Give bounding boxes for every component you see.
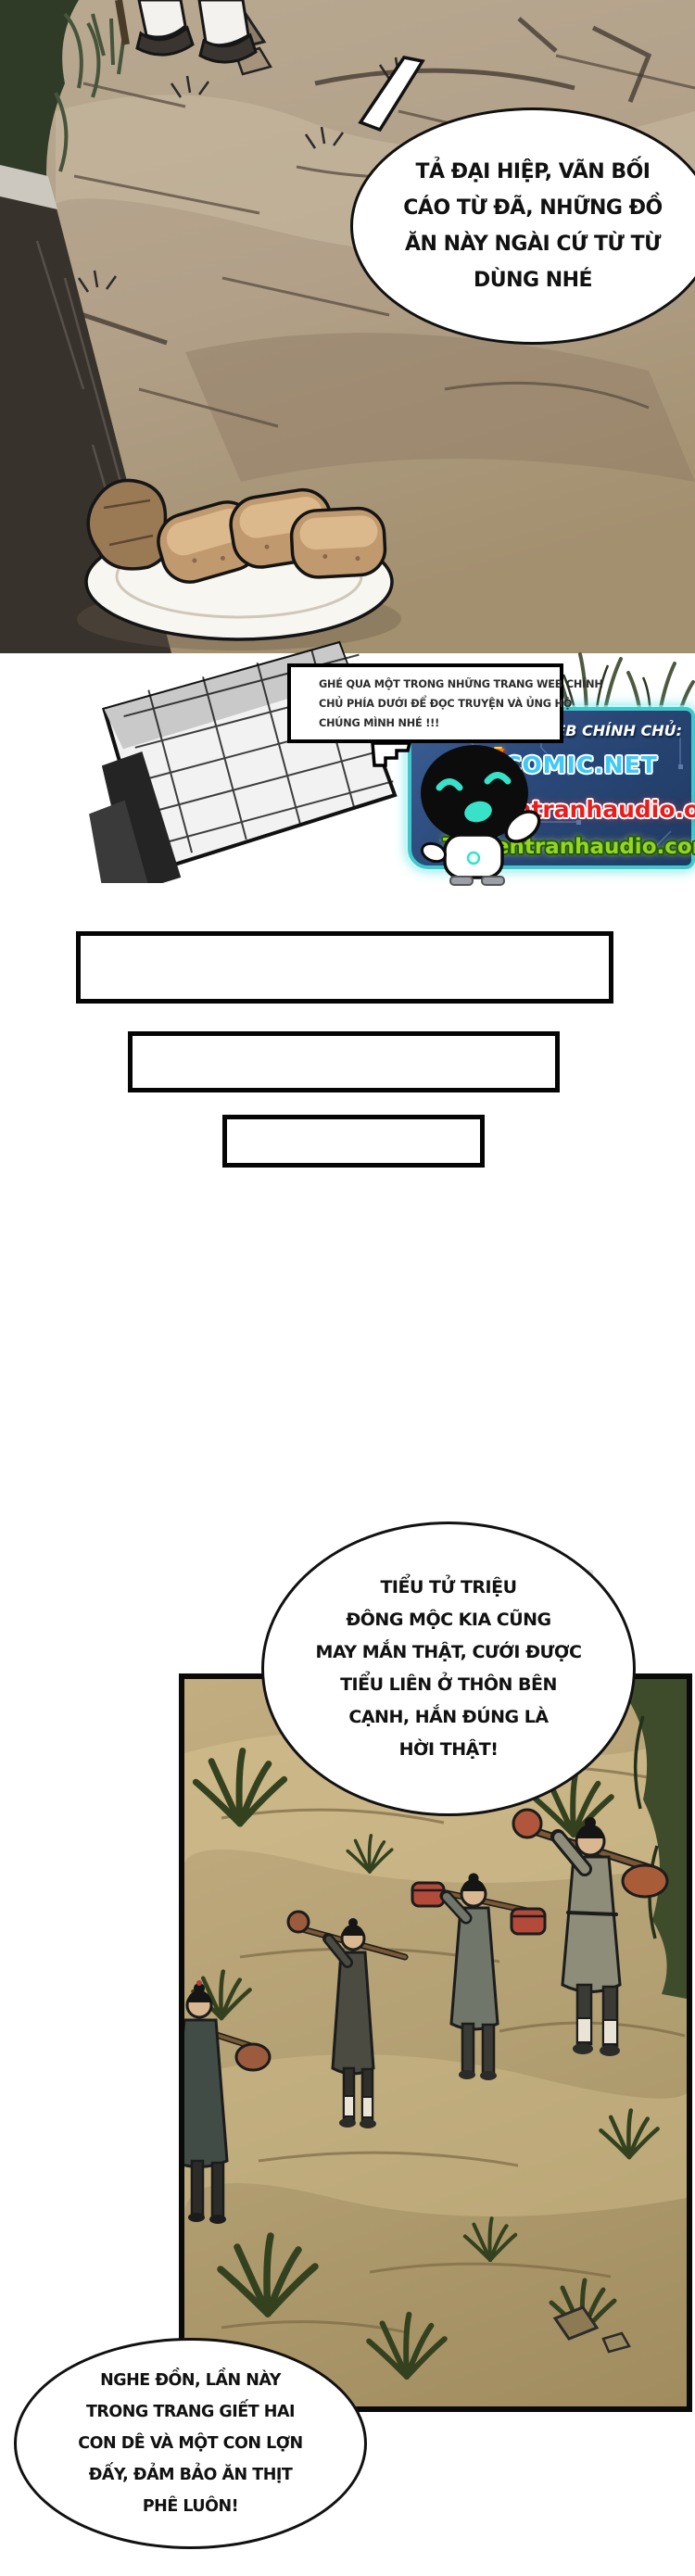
ad-bubble-line: GHÉ QUA MỘT TRONG NHỮNG TRANG WEB CHÍNH (319, 675, 550, 694)
bubble-3-line: NGHE ĐỒN, LẦN NÀY (100, 2365, 281, 2396)
comic-page: TẢ ĐẠI HIỆP, VÃN BỐI CÁO TỪ ĐÃ, NHỮNG ĐỒ… (0, 0, 695, 2576)
speech-bubble-1: TẢ ĐẠI HIỆP, VÃN BỐI CÁO TỪ ĐÃ, NHỮNG ĐỒ… (350, 107, 695, 345)
bubble-1-line: ĂN NÀY NGÀI CỨ TỪ TỪ (405, 226, 661, 262)
bubble-2-line: CẠNH, HẮN ĐÚNG LÀ (348, 1701, 548, 1734)
rock (603, 2333, 629, 2352)
bubble-2-line: MAY MẮN THẬT, CƯỚI ĐƯỢC (316, 1636, 582, 1669)
empty-placeholder-box-3 (222, 1115, 485, 1168)
mascot-chest-light (468, 852, 479, 864)
bubble-1-line: TẢ ĐẠI HIỆP, VÃN BỐI (415, 154, 650, 190)
empty-placeholder-box-2 (128, 1031, 560, 1092)
bread-chunk (88, 480, 168, 568)
ad-bubble-line: CHỦ PHÍA DƯỚI ĐỂ ĐỌC TRUYỆN VÀ ỦNG HỘ (319, 694, 550, 713)
mascot-robot (393, 739, 560, 888)
bubble-3-line: TRONG TRANG GIẾT HAI (86, 2396, 295, 2428)
bubble-2-line: TIỂU LIÊN Ở THÔN BÊN (340, 1669, 557, 1701)
speech-bubble-2: TIỂU TỬ TRIỆU ĐÔNG MỘC KIA CŨNG MAY MẮN … (261, 1522, 636, 1816)
bubble-1-tail (352, 51, 436, 134)
villager-woman-baskets (412, 1874, 545, 2081)
ad-speech-bubble: GHÉ QUA MỘT TRONG NHỮNG TRANG WEB CHÍNH … (287, 663, 563, 743)
bubble-2-line: ĐÔNG MỘC KIA CŨNG (346, 1604, 550, 1636)
ad-bubble-tail (369, 741, 413, 769)
bubble-2-line: TIỂU TỬ TRIỆU (380, 1572, 516, 1604)
ad-bubble-line: CHÚNG MÌNH NHÉ !!! (319, 713, 550, 733)
bubble-3-line: PHÊ LUÔN! (143, 2491, 238, 2522)
speech-bubble-3: NGHE ĐỒN, LẦN NÀY TRONG TRANG GIẾT HAI C… (14, 2338, 367, 2549)
empty-placeholder-box-1 (76, 931, 613, 1004)
bubble-1-line: CÁO TỪ ĐÃ, NHỮNG ĐỒ (403, 190, 662, 226)
bubble-2-line: HỜI THẬT! (399, 1734, 499, 1766)
bubble-3-line: ĐẤY, ĐẢM BẢO ĂN THỊT (89, 2459, 293, 2491)
bubble-3-line: CON DÊ VÀ MỘT CON LỢN (78, 2428, 302, 2459)
bubble-1-line: DÙNG NHÉ (474, 262, 592, 298)
